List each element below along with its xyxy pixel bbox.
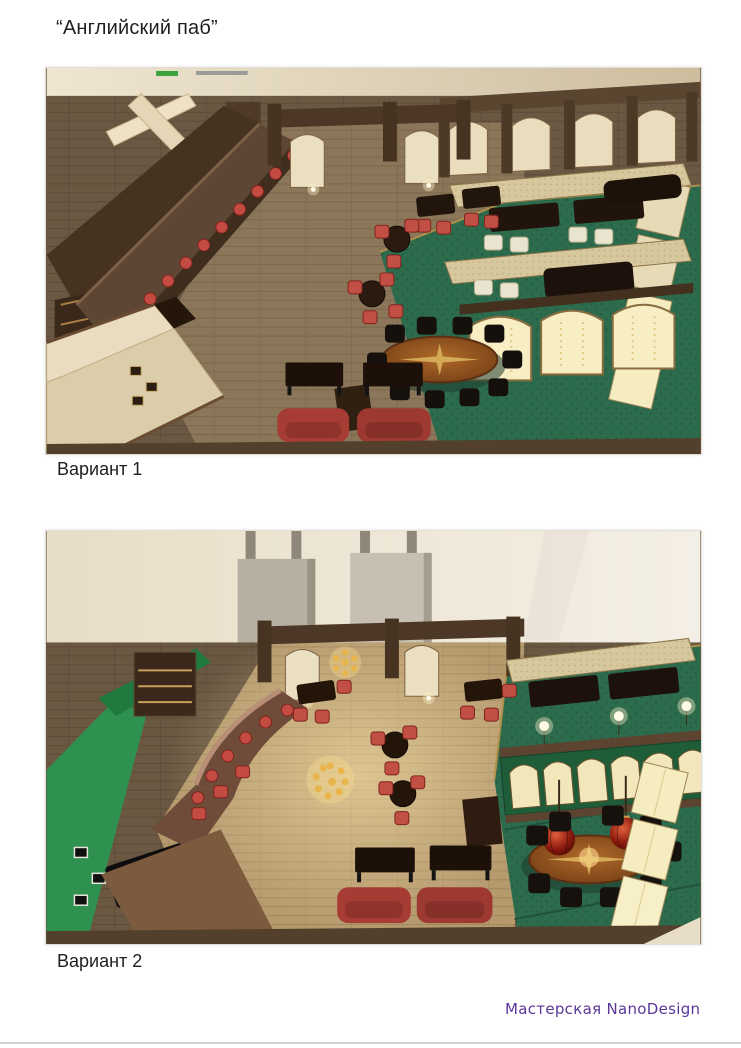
wall-sign — [196, 71, 248, 75]
render-variant-1-image — [45, 67, 702, 455]
chandelier-small — [329, 646, 361, 678]
render-variant-2-image — [45, 530, 702, 945]
page-bottom-border — [0, 1042, 741, 1044]
caption-variant-2: Вариант 2 — [57, 951, 142, 972]
chandelier-large — [306, 756, 354, 804]
caption-variant-1: Вариант 1 — [57, 459, 142, 480]
exit-sign — [156, 71, 178, 76]
studio-credit: Мастерская NanoDesign — [505, 1000, 700, 1018]
service-stand — [462, 796, 503, 847]
page-title: “Английский паб” — [56, 17, 218, 40]
pub-render-2-scene — [46, 531, 701, 944]
wall-shelving — [134, 652, 196, 716]
pub-render-1-scene — [46, 68, 701, 454]
presentation-page: “Английский паб” — [0, 0, 741, 1048]
